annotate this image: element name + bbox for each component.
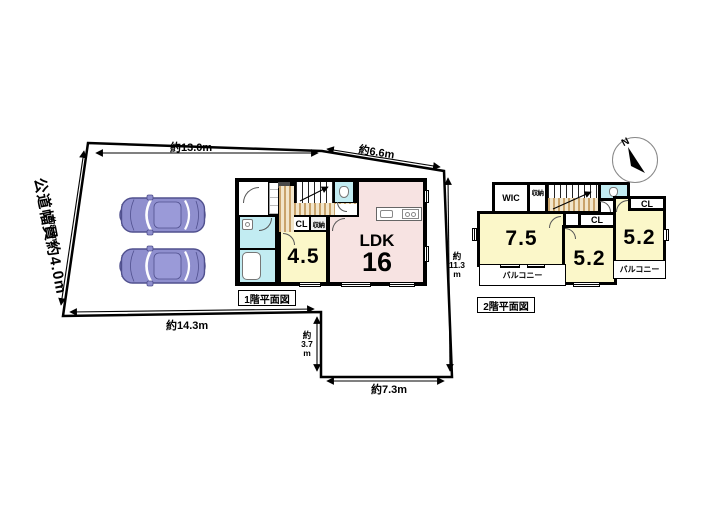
dim-bottom-right: 約7.3m xyxy=(371,381,407,397)
dim-top-right: 約6.6m xyxy=(357,141,395,162)
dim-bottom: 約14.3m xyxy=(166,317,208,333)
floorplan-sheet: CL 収納 4.5 LDK 16 1階平面図 WIC 収納 xyxy=(0,0,705,525)
dim-right-edge: 約 11.3 m xyxy=(444,252,470,279)
dim-top: 約13.0m xyxy=(170,139,212,155)
dim-step: 約 3.7 m xyxy=(297,331,317,358)
dimension-labels: 公道幅員約4.0m 約8.6m 約13.0m 約6.6m 約 11.3 m 約1… xyxy=(0,0,705,525)
